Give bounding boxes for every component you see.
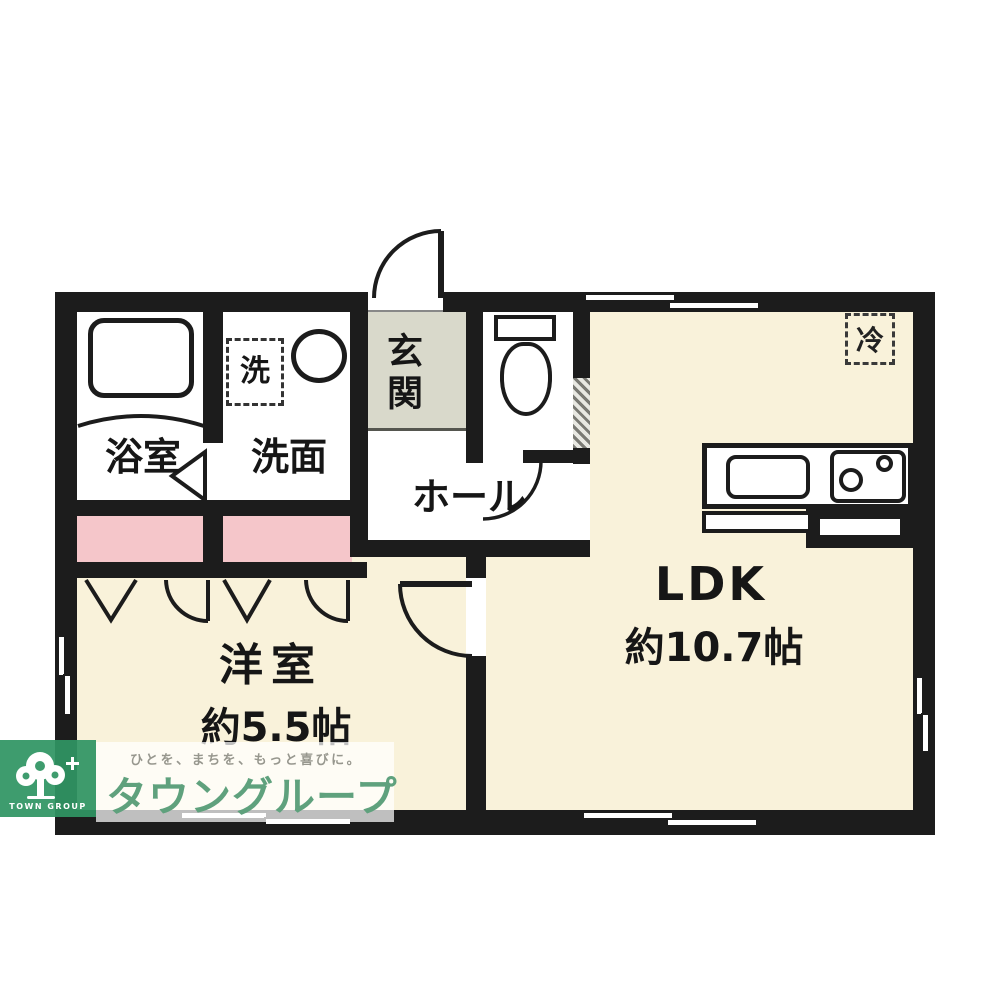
logo-group-name: TOWN GROUP bbox=[9, 802, 86, 811]
closet-right-folding-door bbox=[224, 580, 270, 620]
ldk-label: LDK bbox=[655, 561, 767, 607]
closet-left-door-arc bbox=[166, 580, 208, 621]
closet-left-folding-door bbox=[86, 580, 136, 620]
entrance-door-arc bbox=[374, 231, 441, 298]
bedroom-door-arc bbox=[400, 584, 472, 656]
bathtub-edge-curve bbox=[78, 416, 204, 426]
floor-plan-page: 洗 冷 浴室 洗面 玄関 ホール LDK 約10.7帖 洋室 約5.5帖 bbox=[0, 0, 1000, 999]
ldk-area-label: 約10.7帖 bbox=[625, 628, 804, 668]
washroom-label: 洗面 bbox=[251, 438, 327, 476]
bath-label: 浴室 bbox=[105, 438, 181, 476]
logo-brand: タウングループ bbox=[106, 763, 398, 823]
closet-right-door-arc bbox=[306, 580, 348, 621]
logo-square: TOWN GROUP bbox=[0, 740, 96, 817]
hall-label: ホール bbox=[412, 478, 526, 516]
bedroom-label: 洋室 bbox=[219, 644, 323, 688]
entrance-label: 玄関 bbox=[383, 332, 419, 416]
